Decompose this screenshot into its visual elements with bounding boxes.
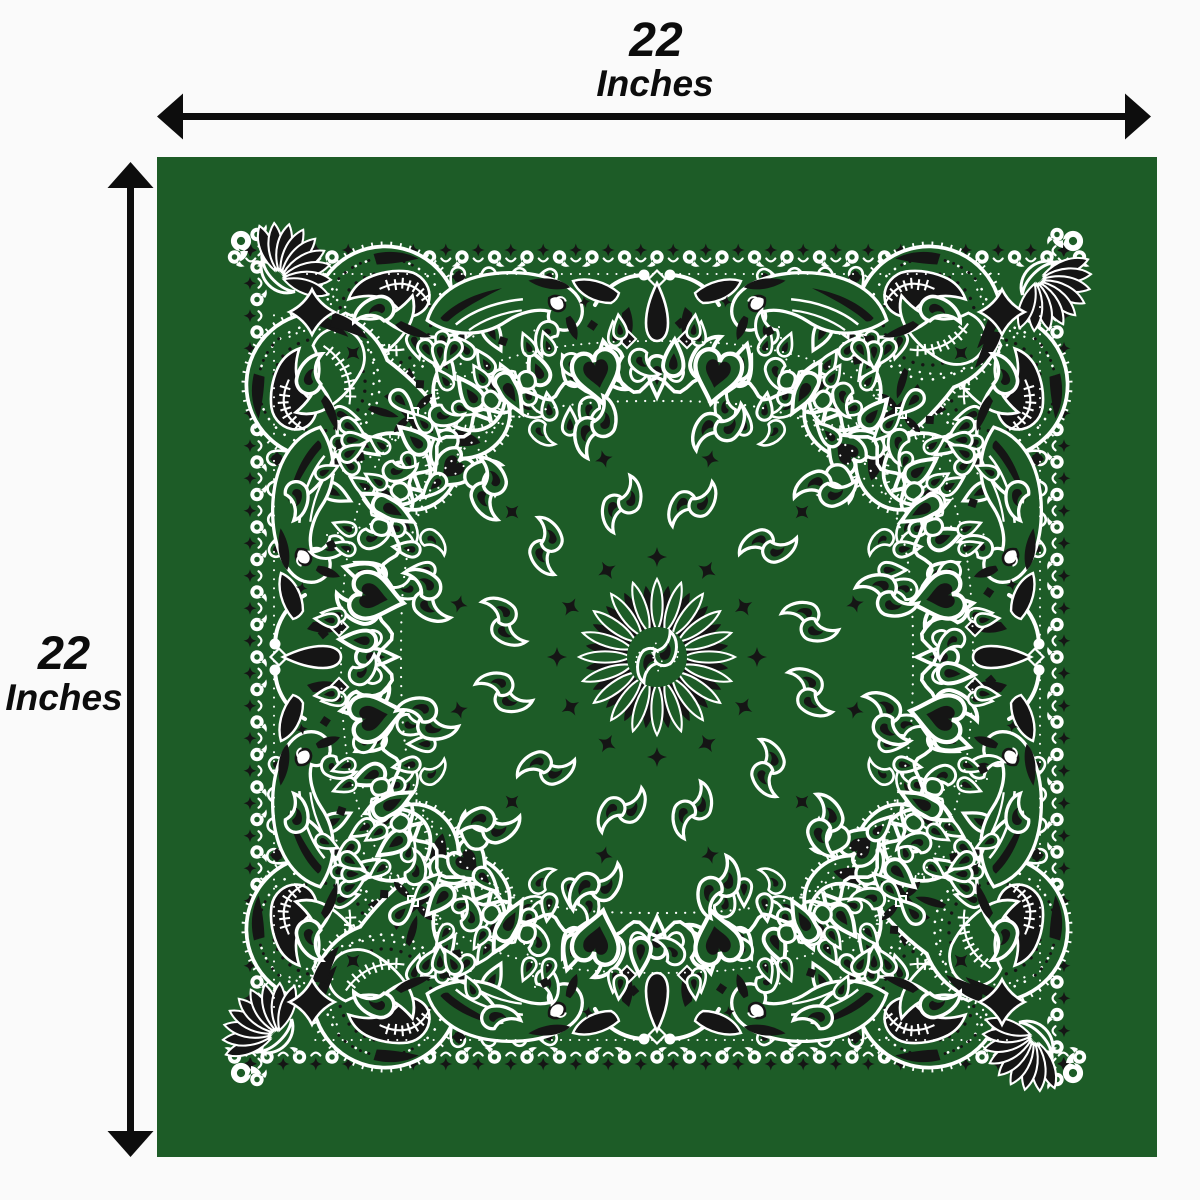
svg-text:22: 22 bbox=[628, 14, 683, 67]
svg-text:Inches: Inches bbox=[5, 677, 122, 718]
svg-text:22: 22 bbox=[37, 626, 90, 679]
svg-text:Inches: Inches bbox=[596, 63, 713, 104]
